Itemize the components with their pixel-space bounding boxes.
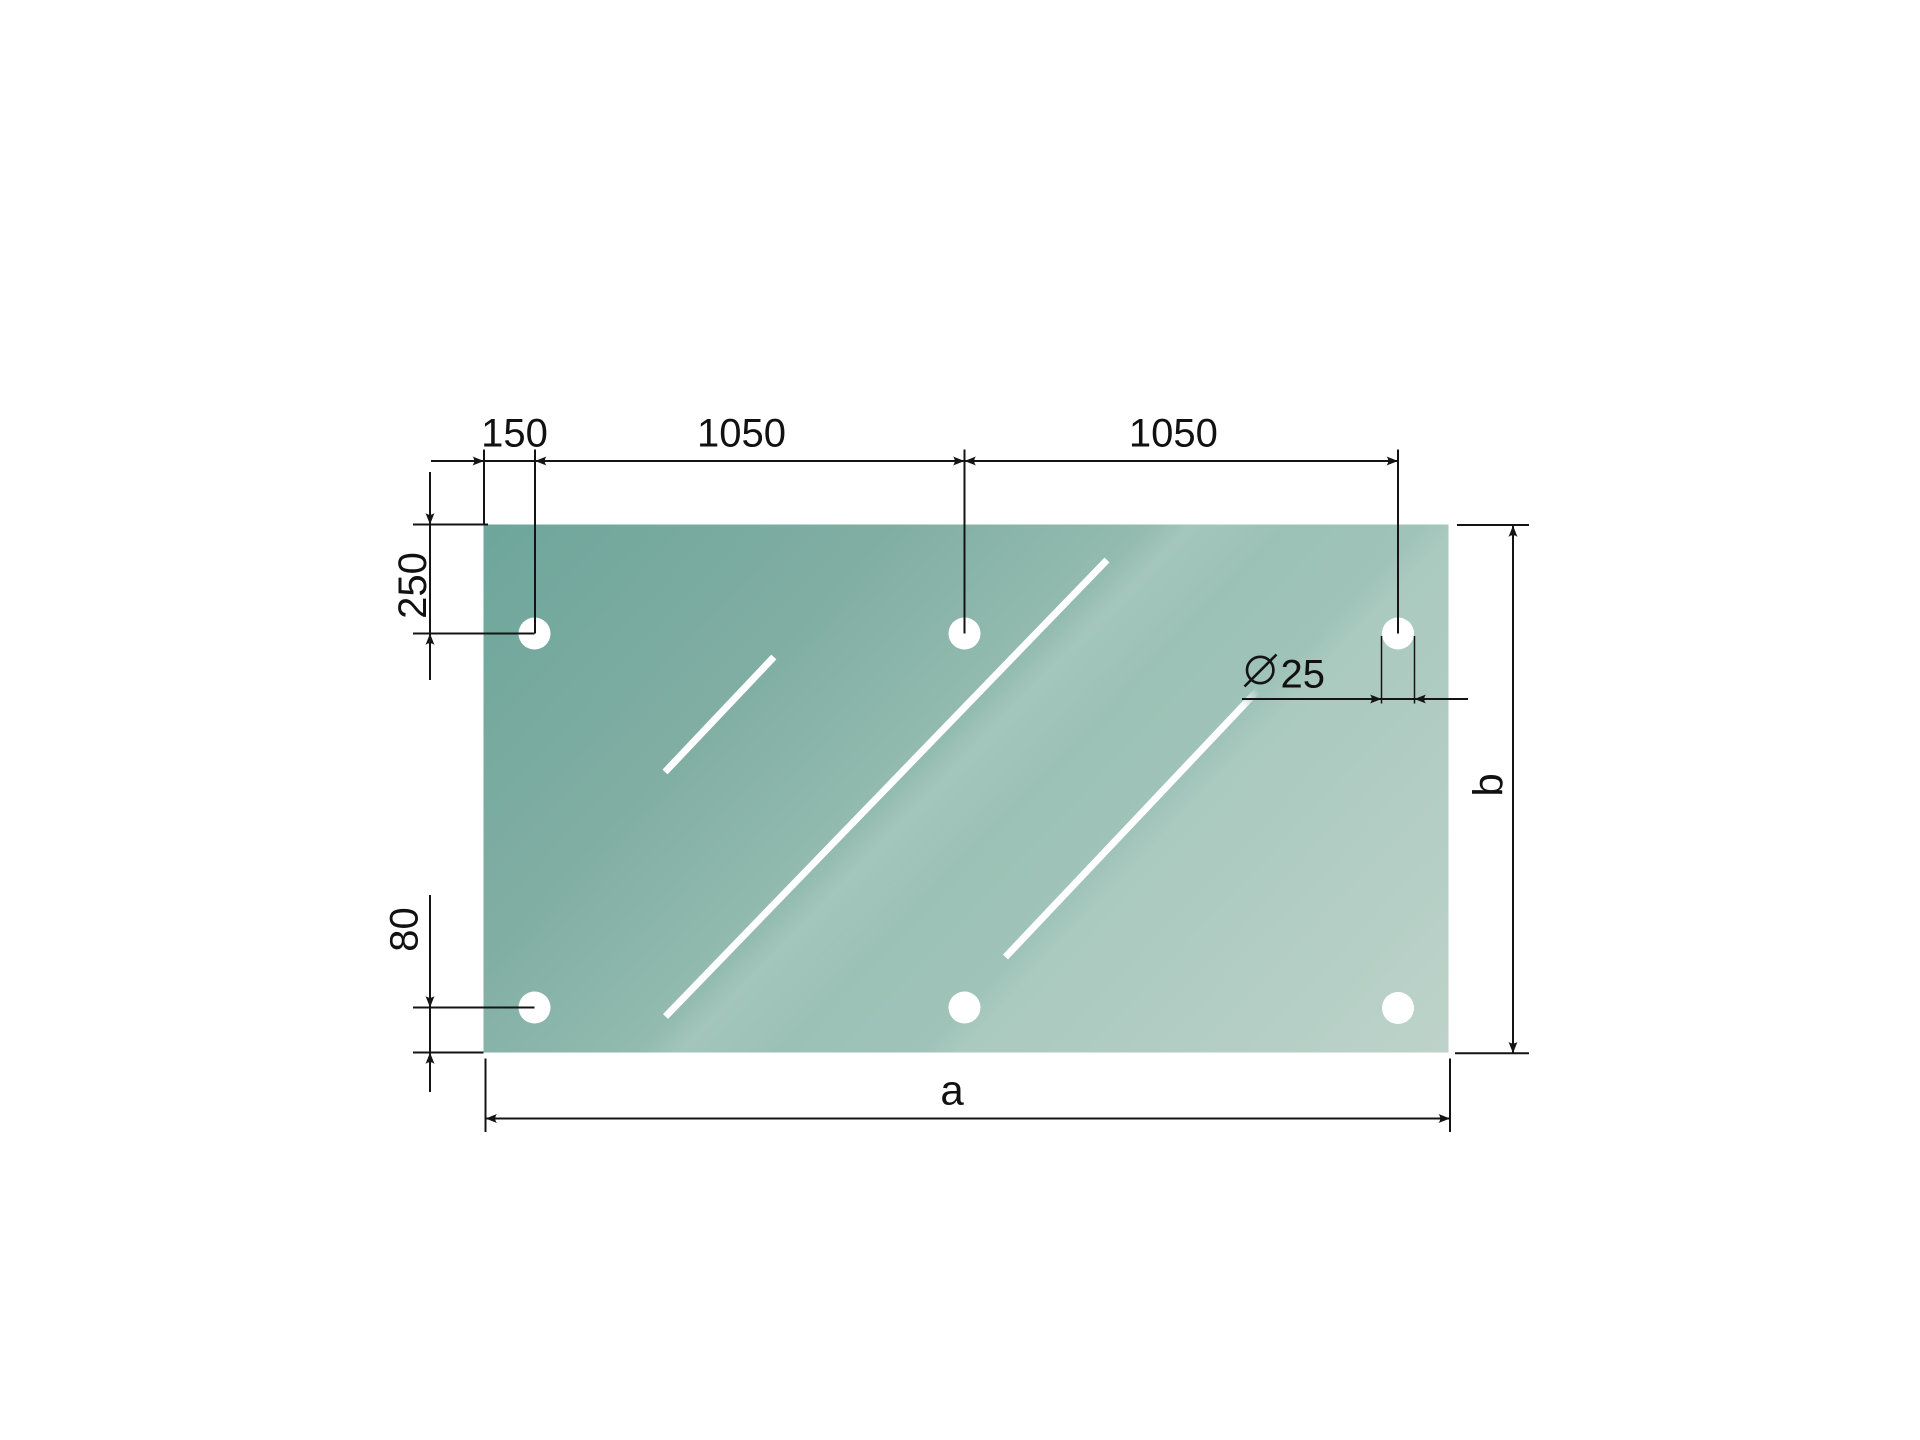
svg-text:1050: 1050 [1129,411,1218,455]
svg-text:150: 150 [481,411,548,455]
svg-text:b: b [1465,773,1512,796]
svg-text:250: 250 [391,552,435,619]
svg-text:80: 80 [383,907,427,952]
svg-text:1050: 1050 [697,411,786,455]
svg-text:25: 25 [1281,653,1326,697]
svg-text:a: a [940,1066,964,1113]
